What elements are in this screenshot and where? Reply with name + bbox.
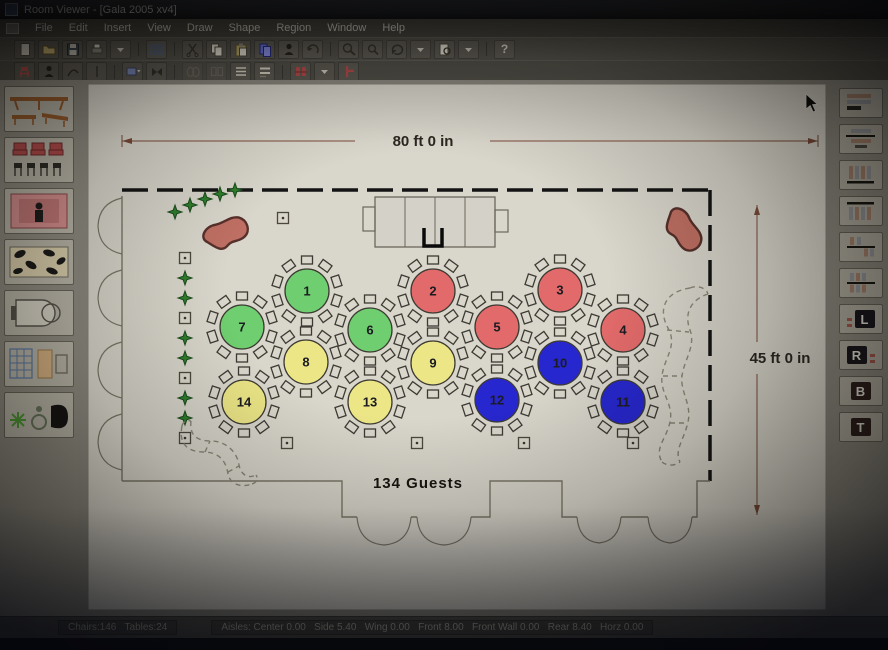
table-grid-icon[interactable]	[146, 40, 167, 59]
palette-table-chair-set[interactable]	[4, 341, 74, 387]
palette-distribute-horizontal[interactable]	[839, 232, 883, 262]
dropdown-icon[interactable]	[410, 40, 431, 59]
help-icon[interactable]: ?	[494, 40, 515, 59]
copy-icon[interactable]	[206, 40, 227, 59]
blue-table-icon[interactable]	[122, 62, 143, 81]
right-palette: L R B T	[832, 80, 888, 617]
row-lines2-icon[interactable]	[254, 62, 275, 81]
guest-count-label: 134 Guests	[373, 475, 463, 492]
dropdown-icon[interactable]	[458, 40, 479, 59]
align-top-letter: T	[851, 418, 871, 436]
dash-marks	[870, 354, 875, 357]
menu-window[interactable]: Window	[319, 20, 374, 36]
svg-text:4: 4	[619, 323, 627, 338]
palette-columns-topline[interactable]	[839, 196, 883, 226]
bottom-strip	[0, 638, 888, 650]
paste-icon[interactable]	[230, 40, 251, 59]
head-table-stage[interactable]	[363, 197, 508, 247]
svg-text:2: 2	[429, 284, 436, 299]
palette-align-right[interactable]: R	[839, 340, 883, 370]
dropdown-icon[interactable]	[110, 40, 131, 59]
svg-text:11: 11	[616, 395, 630, 410]
new-icon[interactable]	[14, 40, 35, 59]
align-bottom-letter: B	[851, 382, 871, 400]
drawing-canvas[interactable]: 80 ft 0 in 45 ft 0 in	[78, 80, 833, 617]
refresh-icon[interactable]	[386, 40, 407, 59]
align-right-letter: R	[847, 346, 867, 364]
ellipse-pair-icon[interactable]	[182, 62, 203, 81]
svg-text:1: 1	[303, 284, 310, 299]
menu-edit[interactable]: Edit	[61, 20, 96, 36]
left-palette	[0, 80, 79, 638]
palette-head-table[interactable]	[4, 86, 74, 132]
bowtie-icon[interactable]	[146, 62, 167, 81]
room-viewer-window: Room Viewer - [Gala 2005 xv4] FileEditIn…	[0, 0, 888, 650]
curve-icon[interactable]	[62, 62, 83, 81]
zoom-out-icon[interactable]	[362, 40, 383, 59]
menu-view[interactable]: View	[139, 20, 179, 36]
rect-pair-icon[interactable]	[206, 62, 227, 81]
palette-stage-podium[interactable]	[4, 188, 74, 234]
row-lines-icon[interactable]	[230, 62, 251, 81]
paste-special-icon[interactable]	[254, 40, 275, 59]
person-icon[interactable]	[38, 62, 59, 81]
title-bar: Room Viewer - [Gala 2005 xv4]	[0, 0, 888, 19]
red-chair-side-icon[interactable]	[338, 62, 359, 81]
app-icon	[5, 3, 18, 16]
undo-icon[interactable]	[302, 40, 323, 59]
palette-rows-wide[interactable]	[839, 88, 883, 118]
svg-text:10: 10	[553, 356, 567, 371]
person-icon[interactable]	[278, 40, 299, 59]
palette-align-bottom[interactable]: B	[839, 376, 883, 406]
svg-text:5: 5	[493, 320, 500, 335]
floorplan-svg: 80 ft 0 in 45 ft 0 in	[78, 80, 833, 617]
palette-distribute-vertical[interactable]	[839, 268, 883, 298]
menu-shape[interactable]: Shape	[221, 20, 269, 36]
align-left-letter: L	[855, 310, 875, 328]
height-dimension-label: 45 ft 0 in	[750, 350, 811, 367]
palette-align-left[interactable]: L	[839, 304, 883, 334]
cut-icon[interactable]	[182, 40, 203, 59]
palette-chair-row[interactable]	[4, 137, 74, 183]
palette-rows-narrow[interactable]	[839, 124, 883, 154]
save-icon[interactable]	[62, 40, 83, 59]
menu-draw[interactable]: Draw	[179, 20, 221, 36]
status-aisles: Aisles: Center 0.00 Side 5.40 Wing 0.00 …	[211, 620, 653, 635]
tick-icon[interactable]	[86, 62, 107, 81]
window-title: Room Viewer - [Gala 2005 xv4]	[24, 4, 177, 16]
menu-help[interactable]: Help	[374, 20, 413, 36]
print-preview-icon[interactable]	[434, 40, 455, 59]
document-window-icon[interactable]	[6, 23, 19, 34]
width-dimension-label: 80 ft 0 in	[393, 133, 454, 150]
red-chair-icon[interactable]	[14, 62, 35, 81]
svg-text:8: 8	[302, 355, 309, 370]
red-chairs-pair-icon[interactable]	[290, 62, 311, 81]
dropdown-icon[interactable]	[314, 62, 335, 81]
palette-columns-baseline[interactable]	[839, 160, 883, 190]
palette-align-top[interactable]: T	[839, 412, 883, 442]
svg-text:13: 13	[363, 395, 377, 410]
status-bar: Chairs:146 Tables:24 Aisles: Center 0.00…	[0, 616, 888, 638]
svg-text:7: 7	[238, 320, 245, 335]
open-icon[interactable]	[38, 40, 59, 59]
dash-marks	[847, 318, 852, 321]
svg-text:6: 6	[366, 323, 373, 338]
menu-file[interactable]: File	[27, 20, 61, 36]
svg-text:14: 14	[237, 395, 252, 410]
zoom-in-icon[interactable]	[338, 40, 359, 59]
palette-plants-accessories[interactable]	[4, 392, 74, 438]
drawing-page	[88, 84, 826, 610]
print-icon[interactable]	[86, 40, 107, 59]
svg-text:12: 12	[490, 393, 504, 408]
svg-text:3: 3	[556, 283, 563, 298]
palette-dance-floor[interactable]	[4, 239, 74, 285]
status-counts: Chairs:146 Tables:24	[58, 620, 177, 635]
toolbar-main: ?	[0, 37, 888, 61]
palette-grand-piano[interactable]	[4, 290, 74, 336]
menu-region[interactable]: Region	[268, 20, 319, 36]
svg-text:9: 9	[429, 356, 436, 371]
menu-bar: FileEditInsertViewDrawShapeRegionWindowH…	[0, 19, 888, 37]
menu-insert[interactable]: Insert	[96, 20, 140, 36]
